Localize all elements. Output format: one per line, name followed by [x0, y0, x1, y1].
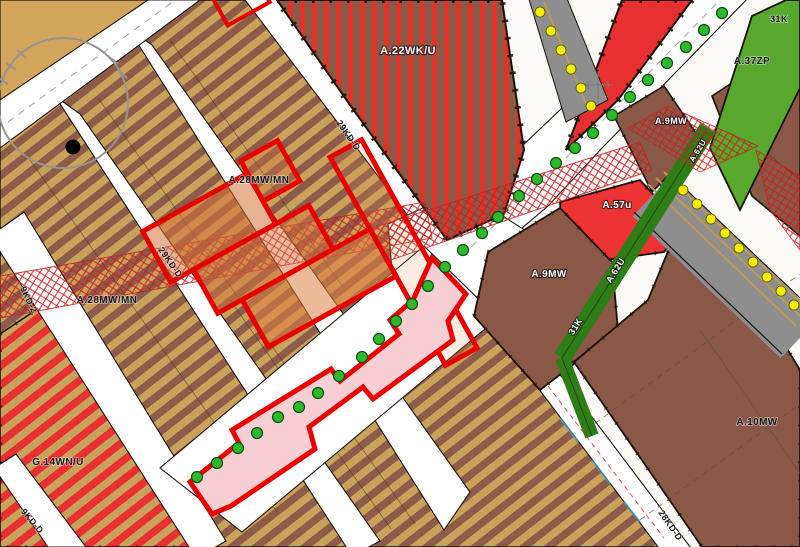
label-zone-g14wnu: G.14WN/U	[32, 457, 84, 468]
label-zone-a37zp: A.37ZP	[734, 56, 770, 67]
tree-dot	[192, 472, 203, 483]
street-dot-yellow	[706, 214, 716, 224]
street-dot-yellow	[692, 199, 702, 209]
tree-dot	[643, 75, 654, 86]
tree-dot	[212, 458, 223, 469]
tree-dot	[252, 428, 263, 439]
label-zone-a57u: A.57u	[602, 200, 631, 211]
street-dot-yellow	[546, 26, 556, 36]
tree-dot	[233, 443, 244, 454]
tree-dot	[440, 262, 451, 273]
tree-dot	[551, 158, 562, 169]
tree-dot	[407, 299, 418, 310]
tree-dot	[273, 412, 284, 423]
tree-dot	[662, 58, 673, 69]
street-dot-yellow	[586, 101, 596, 111]
street-dot-yellow	[576, 83, 586, 93]
label-code-31k-corner: 31K	[770, 14, 788, 24]
tree-dot	[477, 228, 488, 239]
tree-dot	[588, 128, 599, 139]
street-dot-yellow	[556, 45, 566, 55]
tree-dot	[493, 212, 504, 223]
tree-dot	[313, 388, 324, 399]
tree-dot	[607, 110, 618, 121]
street-dot-yellow	[762, 272, 772, 282]
street-dot-yellow	[535, 7, 545, 17]
tree-dot	[699, 25, 710, 36]
street-dot-yellow	[789, 300, 799, 310]
tree-dot	[423, 281, 434, 292]
tree-dot	[458, 245, 469, 256]
street-dot-yellow	[748, 257, 758, 267]
tree-dot	[625, 92, 636, 103]
label-zone-a10mw: A.10MW	[736, 417, 777, 428]
street-dot-yellow	[776, 286, 786, 296]
street-dot-yellow	[734, 243, 744, 253]
tree-dot	[374, 334, 385, 345]
tree-dot	[717, 8, 728, 19]
street-dot-yellow	[566, 64, 576, 74]
label-zone-a28-left: A.28MW/MN	[77, 295, 138, 306]
zoning-map-viewport[interactable]: A.22WK/UA.28MW/MNA.28MW/MNG.14WN/UA.37ZP…	[0, 0, 800, 547]
street-dot-yellow	[720, 228, 730, 238]
tree-dot	[532, 174, 543, 185]
tree-dot	[294, 402, 305, 413]
label-zone-a28-cluster: A.28MW/MN	[229, 175, 290, 186]
tree-dot	[391, 316, 402, 327]
label-zone-a9mw-mid: A.9MW	[531, 269, 566, 280]
label-zone-a22wku: A.22WK/U	[380, 45, 436, 57]
tree-dot	[357, 352, 368, 363]
tree-dot	[570, 143, 581, 154]
tree-dot	[334, 371, 345, 382]
tree-dot	[514, 191, 525, 202]
label-zone-a9mw-upper: A.9MW	[655, 116, 687, 126]
street-dot-yellow	[678, 185, 688, 195]
zoning-map: A.22WK/UA.28MW/MNA.28MW/MNG.14WN/UA.37ZP…	[0, 0, 800, 547]
junction-dot	[66, 140, 81, 155]
tree-dot	[681, 42, 692, 53]
